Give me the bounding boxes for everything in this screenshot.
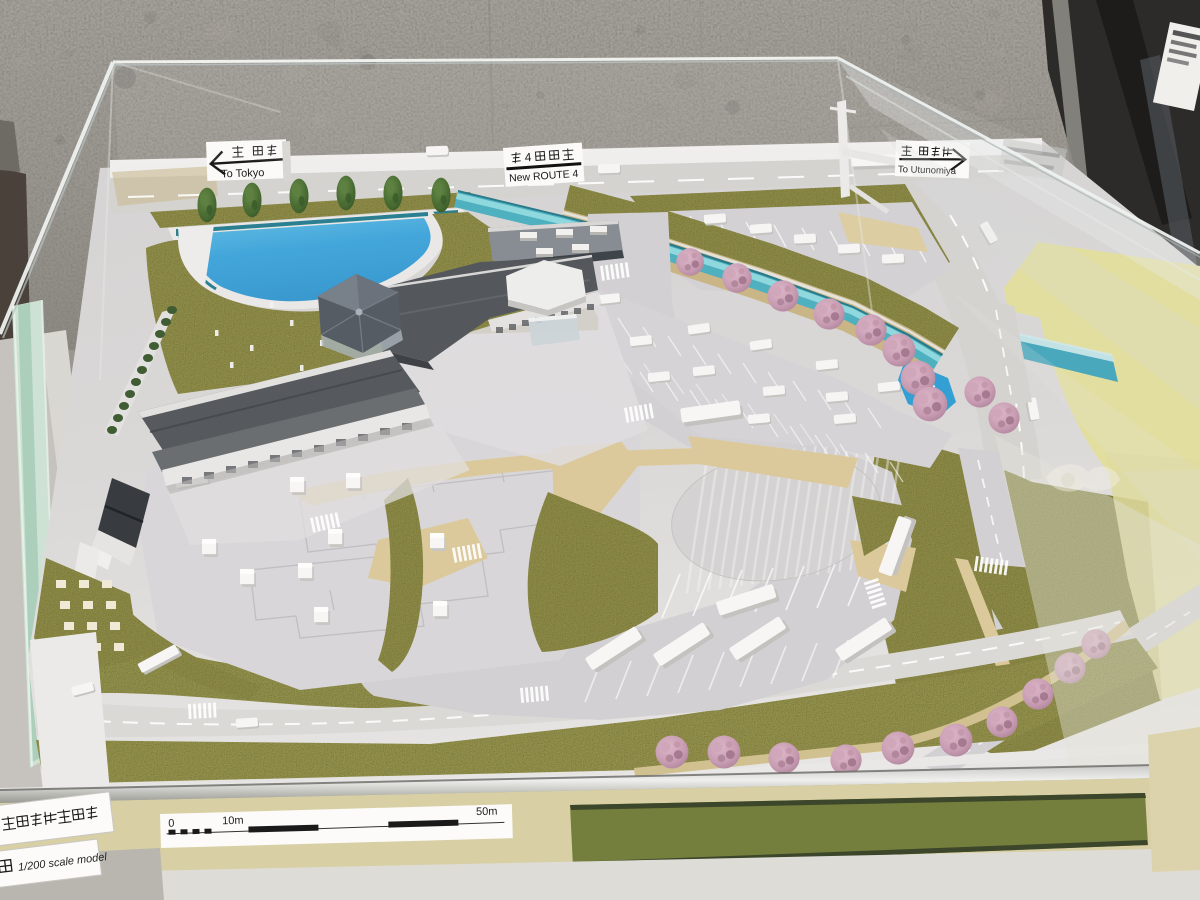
svg-text:50m: 50m bbox=[476, 806, 498, 819]
svg-text:10m: 10m bbox=[222, 815, 244, 828]
svg-text:0: 0 bbox=[168, 818, 174, 830]
svg-text:To Tokyo: To Tokyo bbox=[221, 167, 265, 181]
